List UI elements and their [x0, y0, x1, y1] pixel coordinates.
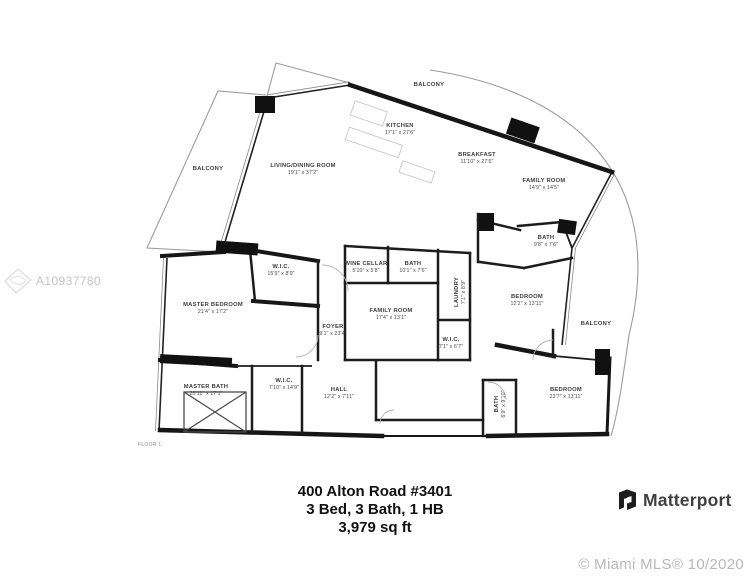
room-label: LIVING/DINING ROOM19'1" x 37'2" — [270, 163, 335, 176]
room-label: HALL12'2" x 7'11" — [324, 387, 354, 400]
room-label: WINE CELLAR5'10" x 5'8" — [344, 261, 388, 274]
room-label: BATH6'9" x 9'10" — [494, 390, 507, 417]
room-label: W.I.C.7'10" x 14'9" — [269, 378, 299, 391]
room-label: BALCONY — [193, 166, 223, 172]
room-label: FAMILY ROOM17'4" x 13'1" — [369, 308, 412, 321]
floor-plan-page: FLOOR 1 BALCONYBALCONYBALCONYKITCHEN17'1… — [0, 0, 750, 580]
room-label: BALCONY — [414, 82, 444, 88]
mls-compass-watermark-icon — [4, 268, 32, 294]
room-label: W.I.C.15'9" x 8'9" — [267, 264, 294, 277]
walls-interior-heavy — [160, 250, 318, 366]
room-label: MASTER BEDROOM21'4" x 17'2" — [183, 302, 243, 315]
mls-watermark: A10937780 — [4, 268, 101, 294]
floor-number-label: FLOOR 1 — [138, 442, 162, 448]
room-label: KITCHEN17'1" x 27'6" — [385, 123, 415, 136]
room-label: BREAKFAST11'10" x 27'6" — [458, 152, 496, 165]
room-label: W.I.C.7'1" x 6'7" — [439, 337, 463, 350]
room-label: BEDROOM23'7" x 13'11" — [549, 387, 582, 400]
room-label: FOYER9'1" x 23'4" — [319, 324, 346, 337]
copyright-watermark: © Miami MLS® 10/2020 — [578, 556, 744, 573]
listing-area: 3,979 sq ft — [0, 519, 750, 537]
matterport-logo: Matterport — [618, 489, 732, 511]
room-label: MASTER BATH20'11" x 17'1" — [184, 384, 229, 397]
room-label: BATH10'1" x 7'6" — [399, 261, 426, 274]
kitchen-fixtures — [345, 101, 435, 183]
matterport-logo-icon — [618, 489, 637, 511]
matterport-logo-text: Matterport — [643, 490, 732, 511]
room-label: BALCONY — [581, 321, 611, 327]
mls-id-text: A10937780 — [36, 274, 101, 288]
room-label: BEDROOM12'2" x 13'11" — [510, 294, 543, 307]
room-label: BATH9'8" x 7'6" — [534, 235, 558, 248]
shower-box — [184, 392, 246, 432]
room-label: LAUNDRY7'1" x 8'9" — [454, 277, 467, 307]
room-label: FAMILY ROOM14'9" x 14'5" — [522, 178, 565, 191]
walls-interior — [250, 214, 572, 436]
